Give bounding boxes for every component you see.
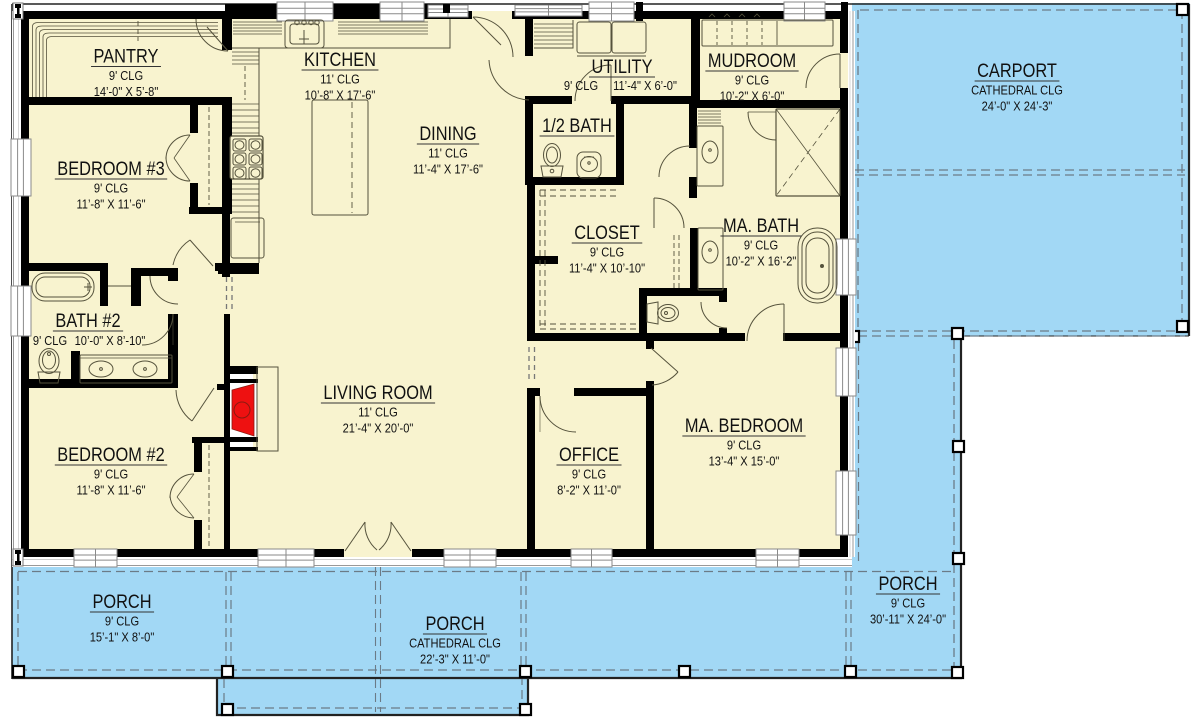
svg-text:BEDROOM #2: BEDROOM #2 <box>57 444 164 466</box>
svg-text:11' CLG: 11' CLG <box>320 72 360 87</box>
svg-text:UTILITY: UTILITY <box>592 56 653 78</box>
svg-text:9' CLG: 9' CLG <box>105 614 139 629</box>
svg-text:9' CLG: 9' CLG <box>572 467 606 482</box>
svg-text:30’-11" X 24’-0": 30’-11" X 24’-0" <box>870 612 946 627</box>
svg-text:9' CLG: 9' CLG <box>564 78 598 93</box>
svg-text:11' CLG: 11' CLG <box>358 405 398 420</box>
svg-text:9' CLG: 9' CLG <box>590 245 624 260</box>
svg-text:OFFICE: OFFICE <box>559 444 619 466</box>
svg-text:9' CLG: 9' CLG <box>109 68 143 83</box>
svg-text:11’-4" X 17’-6": 11’-4" X 17’-6" <box>413 162 483 177</box>
svg-text:PORCH: PORCH <box>878 573 937 595</box>
svg-text:13’-4" X 15’-0": 13’-4" X 15’-0" <box>709 454 780 469</box>
svg-text:PORCH: PORCH <box>425 613 484 635</box>
svg-text:10’-0" X 8’-10": 10’-0" X 8’-10" <box>75 333 146 348</box>
svg-text:9' CLG: 9' CLG <box>744 238 778 253</box>
svg-text:15’-1" X 8’-0": 15’-1" X 8’-0" <box>90 630 155 645</box>
svg-text:9' CLG: 9' CLG <box>94 467 128 482</box>
svg-text:9' CLG: 9' CLG <box>33 333 67 348</box>
svg-text:CARPORT: CARPORT <box>977 60 1057 82</box>
svg-text:MA. BEDROOM: MA. BEDROOM <box>685 415 803 437</box>
svg-text:24’-0" X 24’-3": 24’-0" X 24’-3" <box>982 99 1053 114</box>
svg-text:11' CLG: 11' CLG <box>428 146 468 161</box>
svg-text:CLOSET: CLOSET <box>574 222 640 244</box>
svg-text:11’-8" X 11’-6": 11’-8" X 11’-6" <box>76 483 145 498</box>
svg-text:BEDROOM #3: BEDROOM #3 <box>57 158 164 180</box>
svg-text:9' CLG: 9' CLG <box>735 73 769 88</box>
svg-text:10’-8" X 17’-6": 10’-8" X 17’-6" <box>305 88 376 103</box>
svg-text:9' CLG: 9' CLG <box>891 596 925 611</box>
svg-text:9' CLG: 9' CLG <box>94 181 128 196</box>
svg-text:CATHEDRAL CLG: CATHEDRAL CLG <box>409 636 501 651</box>
svg-text:CATHEDRAL CLG: CATHEDRAL CLG <box>971 83 1063 98</box>
svg-text:11’-4" X 6’-0": 11’-4" X 6’-0" <box>613 78 677 93</box>
svg-text:11’-8" X 11’-6": 11’-8" X 11’-6" <box>76 197 145 212</box>
svg-text:22’-3" X 11’-0": 22’-3" X 11’-0" <box>420 652 490 667</box>
svg-text:PANTRY: PANTRY <box>94 46 159 68</box>
svg-text:10’-2" X 16’-2": 10’-2" X 16’-2" <box>726 254 797 269</box>
svg-text:MUDROOM: MUDROOM <box>708 50 796 72</box>
svg-text:11’-4" X 10’-10": 11’-4" X 10’-10" <box>569 261 645 276</box>
svg-text:LIVING ROOM: LIVING ROOM <box>323 382 432 404</box>
svg-text:10’-2" X 6’-0": 10’-2" X 6’-0" <box>720 89 785 104</box>
svg-text:DINING: DINING <box>419 123 476 145</box>
svg-text:1/2 BATH: 1/2 BATH <box>542 115 612 137</box>
svg-text:9' CLG: 9' CLG <box>727 438 761 453</box>
svg-text:21’-4" X 20’-0": 21’-4" X 20’-0" <box>343 421 414 436</box>
svg-text:8’-2" X 11’-0": 8’-2" X 11’-0" <box>557 483 621 498</box>
svg-text:MA. BATH: MA. BATH <box>723 215 799 237</box>
svg-text:PORCH: PORCH <box>92 591 151 613</box>
svg-text:KITCHEN: KITCHEN <box>304 49 376 71</box>
svg-text:14’-0" X 5’-8": 14’-0" X 5’-8" <box>94 84 159 99</box>
svg-text:BATH #2: BATH #2 <box>55 310 120 332</box>
